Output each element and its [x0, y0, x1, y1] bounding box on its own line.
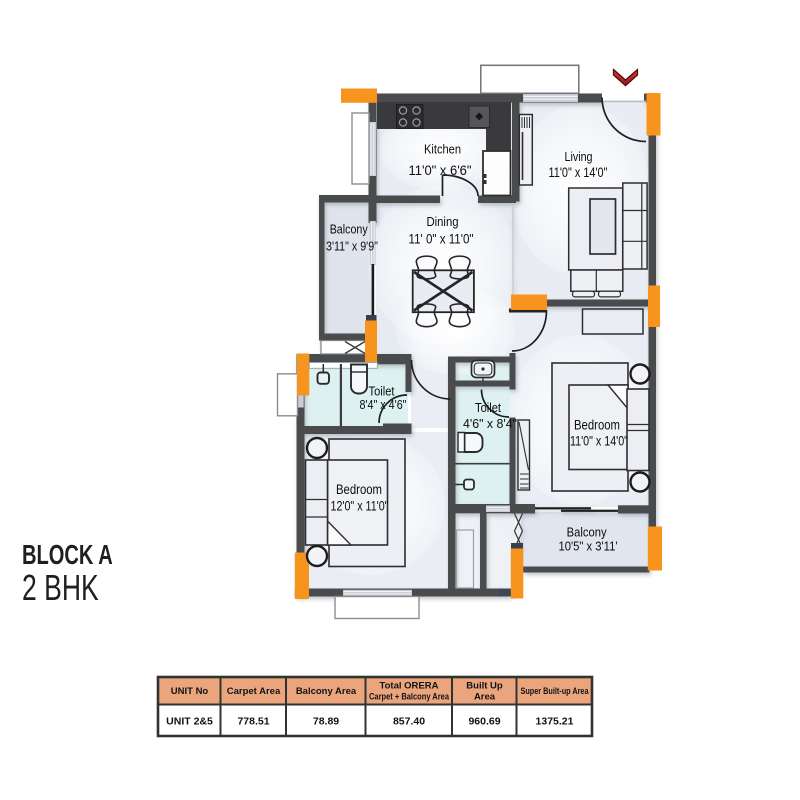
- svg-text:857.40: 857.40: [393, 716, 425, 728]
- svg-text:960.69: 960.69: [468, 716, 500, 728]
- svg-text:Area: Area: [474, 692, 496, 703]
- svg-text:Toilet: Toilet: [369, 385, 395, 399]
- svg-text:11'0" x 6'6": 11'0" x 6'6": [409, 163, 472, 178]
- svg-text:UNIT 2&5: UNIT 2&5: [166, 716, 213, 728]
- svg-text:Carpet + Balcony Area: Carpet + Balcony Area: [369, 692, 450, 703]
- svg-text:12'0" x 11'0": 12'0" x 11'0": [331, 499, 389, 514]
- svg-text:Total ORERA: Total ORERA: [380, 681, 439, 692]
- svg-text:4'6" x 8'4": 4'6" x 8'4": [463, 416, 517, 431]
- svg-text:Toilet: Toilet: [475, 400, 501, 415]
- svg-text:10'5" x 3'11': 10'5" x 3'11': [559, 539, 618, 554]
- svg-text:11'0" x 14'0": 11'0" x 14'0": [570, 434, 628, 449]
- svg-text:Living: Living: [565, 149, 593, 164]
- svg-text:778.51: 778.51: [237, 716, 269, 728]
- svg-text:3'11" x 9'9": 3'11" x 9'9": [326, 240, 378, 254]
- svg-text:Kitchen: Kitchen: [424, 142, 461, 157]
- svg-text:Carpet Area: Carpet Area: [227, 686, 281, 697]
- svg-text:Built Up: Built Up: [466, 681, 503, 692]
- svg-text:78.89: 78.89: [313, 716, 339, 728]
- svg-text:Bedroom: Bedroom: [336, 482, 382, 497]
- svg-text:Balcony Area: Balcony Area: [296, 686, 357, 697]
- svg-text:11' 0" x 11'0": 11' 0" x 11'0": [409, 232, 474, 247]
- svg-text:8'4" x 4'6": 8'4" x 4'6": [360, 398, 407, 412]
- svg-text:UNIT No: UNIT No: [171, 686, 209, 697]
- svg-text:Balcony: Balcony: [330, 223, 369, 237]
- svg-text:Bedroom: Bedroom: [574, 418, 620, 433]
- svg-text:1375.21: 1375.21: [536, 716, 574, 728]
- svg-text:Super Built-up Area: Super Built-up Area: [521, 686, 590, 697]
- svg-text:Dining: Dining: [427, 214, 459, 229]
- svg-text:Balcony: Balcony: [567, 525, 607, 540]
- svg-text:11'0" x 14'0": 11'0" x 14'0": [549, 165, 608, 180]
